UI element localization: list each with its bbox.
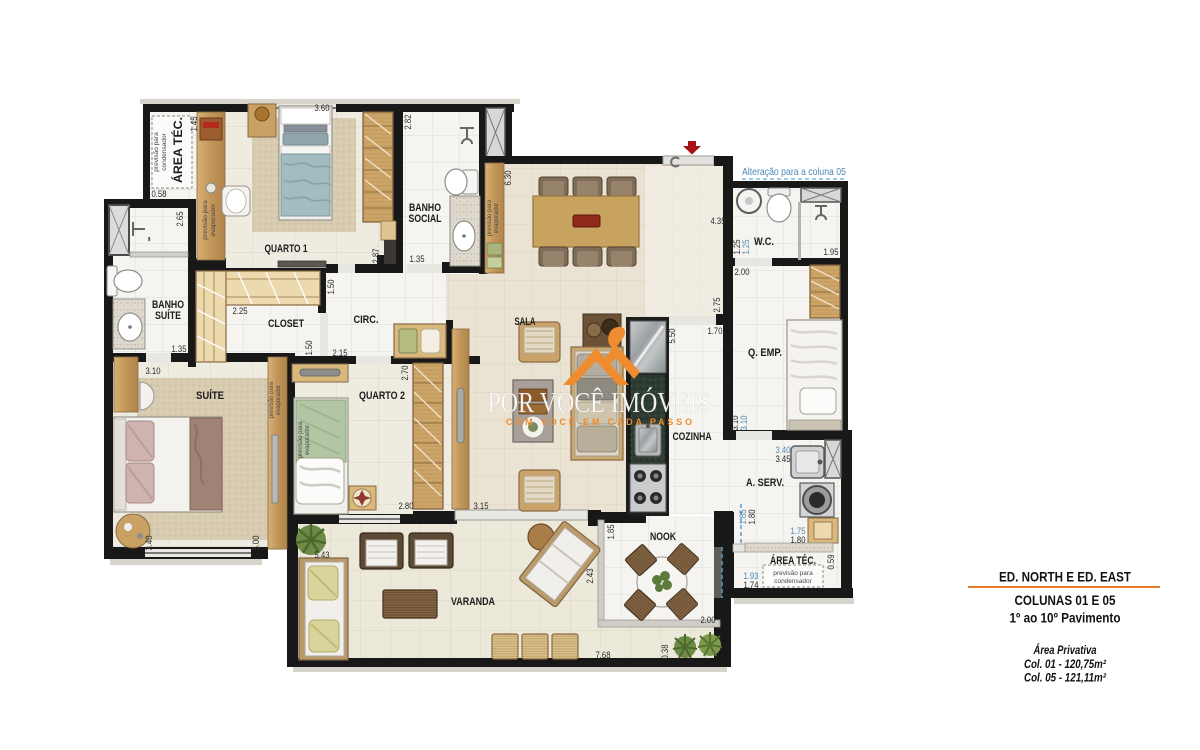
svg-text:2.00: 2.00 — [701, 615, 716, 625]
svg-text:ÁREA TÉC.: ÁREA TÉC. — [770, 554, 816, 567]
svg-text:3.60: 3.60 — [315, 103, 330, 113]
svg-text:1.25: 1.25 — [741, 240, 751, 255]
svg-text:SALA: SALA — [515, 316, 536, 328]
svg-text:2.87: 2.87 — [371, 249, 381, 264]
svg-text:Col. 01 - 120,75m²: Col. 01 - 120,75m² — [1024, 657, 1107, 671]
svg-text:5.50: 5.50 — [667, 329, 677, 344]
svg-text:3.10: 3.10 — [146, 366, 161, 376]
svg-text:2.70: 2.70 — [400, 366, 410, 381]
svg-text:3.45: 3.45 — [776, 454, 791, 464]
svg-text:evaporador: evaporador — [305, 425, 311, 455]
svg-text:Col. 05 - 121,11m²: Col. 05 - 121,11m² — [1024, 671, 1107, 685]
svg-text:3.40: 3.40 — [144, 536, 154, 551]
svg-text:3.15: 3.15 — [474, 501, 489, 511]
svg-text:1.50: 1.50 — [304, 341, 314, 356]
svg-text:condensador: condensador — [774, 578, 812, 585]
svg-text:Área Privativa: Área Privativa — [1033, 642, 1097, 657]
svg-text:3.10: 3.10 — [739, 416, 749, 431]
svg-text:2.25: 2.25 — [233, 306, 248, 316]
svg-text:1.95: 1.95 — [824, 247, 839, 257]
svg-text:4.35: 4.35 — [711, 216, 726, 226]
svg-text:2.80: 2.80 — [399, 501, 414, 511]
svg-text:1º ao 10º Pavimento: 1º ao 10º Pavimento — [1010, 611, 1121, 626]
svg-text:ÁREA TÉC.: ÁREA TÉC. — [170, 117, 185, 183]
svg-text:POR VOCÊ IMÓVEIS: POR VOCÊ IMÓVEIS — [488, 386, 711, 419]
svg-text:2.43: 2.43 — [585, 569, 595, 584]
svg-text:0.58: 0.58 — [152, 189, 167, 199]
svg-text:VARANDA: VARANDA — [451, 596, 495, 608]
svg-text:SUÍTE: SUÍTE — [155, 309, 181, 322]
svg-text:1.50: 1.50 — [326, 280, 336, 295]
svg-text:1.70: 1.70 — [708, 326, 723, 336]
svg-text:1.35: 1.35 — [172, 344, 187, 354]
svg-text:A. SERV.: A. SERV. — [746, 477, 784, 489]
svg-text:2.00: 2.00 — [735, 267, 750, 277]
svg-text:evaporador: evaporador — [276, 385, 282, 415]
svg-text:previsão para: previsão para — [773, 570, 813, 577]
svg-text:evaporador: evaporador — [494, 203, 500, 233]
svg-text:Alteração para a coluna 05: Alteração para a coluna 05 — [742, 166, 846, 178]
svg-text:1.85: 1.85 — [606, 525, 616, 540]
svg-text:5.00: 5.00 — [251, 536, 261, 551]
svg-text:QUARTO 2: QUARTO 2 — [359, 390, 405, 402]
svg-text:previsão para: previsão para — [153, 132, 160, 172]
svg-text:CLOSET: CLOSET — [268, 318, 304, 330]
svg-text:6.30: 6.30 — [503, 171, 513, 186]
svg-text:CIRC.: CIRC. — [354, 314, 379, 326]
svg-text:ED. NORTH E ED. EAST: ED. NORTH E ED. EAST — [999, 570, 1132, 585]
svg-text:NOOK: NOOK — [650, 531, 676, 543]
svg-text:5.43: 5.43 — [315, 550, 330, 560]
svg-text:1.80: 1.80 — [747, 510, 757, 525]
svg-text:2.65: 2.65 — [175, 212, 185, 227]
svg-text:SOCIAL: SOCIAL — [409, 213, 442, 225]
svg-text:condensador: condensador — [161, 132, 168, 170]
svg-text:0.59: 0.59 — [826, 555, 836, 570]
svg-text:previsão para: previsão para — [269, 381, 275, 418]
svg-text:previsão para: previsão para — [202, 200, 209, 240]
svg-text:previsão para: previsão para — [298, 421, 304, 458]
svg-text:evaporador: evaporador — [210, 203, 217, 237]
svg-text:2.75: 2.75 — [712, 298, 722, 313]
svg-text:W.C.: W.C. — [754, 236, 774, 248]
svg-text:2.82: 2.82 — [403, 115, 413, 130]
svg-text:previsão para: previsão para — [487, 199, 493, 236]
svg-text:QUARTO 1: QUARTO 1 — [265, 243, 308, 255]
svg-text:Q. EMP.: Q. EMP. — [748, 347, 782, 359]
svg-text:SUÍTE: SUÍTE — [196, 389, 224, 402]
svg-text:7.68: 7.68 — [596, 650, 611, 660]
svg-text:COZINHA: COZINHA — [673, 431, 712, 443]
svg-text:COLUNAS 01 E 05: COLUNAS 01 E 05 — [1015, 593, 1116, 608]
svg-text:0.38: 0.38 — [660, 645, 670, 660]
svg-text:1.45: 1.45 — [189, 117, 199, 132]
svg-text:1.35: 1.35 — [410, 254, 425, 264]
svg-text:2.15: 2.15 — [333, 348, 348, 358]
svg-text:1.80: 1.80 — [791, 535, 806, 545]
svg-text:1.74: 1.74 — [744, 580, 759, 590]
